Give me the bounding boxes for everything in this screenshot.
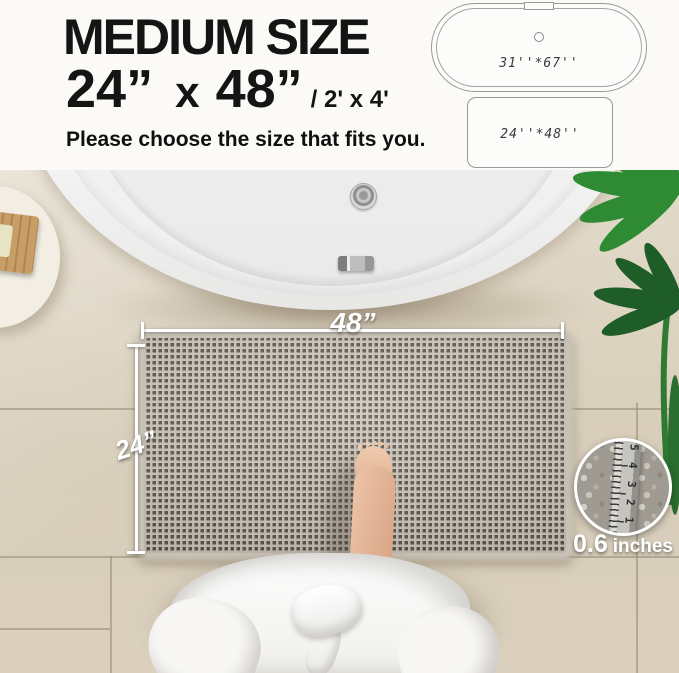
width-dimension-label: 48” <box>303 307 403 339</box>
ruler-number: 3 <box>625 480 637 495</box>
ruler: 5 4 3 2 1 <box>607 438 642 536</box>
product-infographic: MEDIUM SIZE 24” x 48” / 2' x 4' Please c… <box>0 0 679 673</box>
size-label: 24” x 48” / 2' x 4' <box>66 62 389 116</box>
bathtub-diagram-faucet-notch <box>524 2 554 10</box>
page-title: MEDIUM SIZE <box>63 12 369 62</box>
header-section: MEDIUM SIZE 24” x 48” / 2' x 4' Please c… <box>0 0 679 170</box>
size-x: x <box>175 71 199 115</box>
bathtub-drain <box>350 183 377 210</box>
tile-grout-line <box>110 556 112 673</box>
tile-grout-line <box>0 628 110 630</box>
length-dimension-cap-bottom <box>127 551 145 554</box>
bathtub-faucet <box>338 256 374 271</box>
bathtub-diagram-label: 31''*67'' <box>432 56 646 71</box>
size-inches-b: 48” <box>216 62 303 116</box>
pile-detail-zoom-circle: 5 4 3 2 1 <box>574 438 672 536</box>
size-feet-alt: / 2' x 4' <box>311 86 389 114</box>
mat-size-diagram: 24''*48'' <box>467 97 613 168</box>
mat-diagram-label: 24''*48'' <box>468 127 612 142</box>
ruler-number: 4 <box>627 462 639 477</box>
bathtub-diagram-drain-icon <box>534 32 544 42</box>
thickness-unit: inches <box>613 536 673 557</box>
bathtub-size-diagram: 31''*67'' <box>431 3 647 92</box>
bathroom-photo: 48” 24” 5 4 3 2 1 0.6inches <box>0 170 679 673</box>
bathtub-diagram-inner-outline <box>436 8 642 87</box>
size-inches-a: 24” <box>66 62 153 116</box>
ruler-number: 2 <box>624 498 636 513</box>
ruler-number: 5 <box>628 444 640 459</box>
thickness-value: 0.6 <box>573 530 608 558</box>
tagline: Please choose the size that fits you. <box>66 128 425 152</box>
length-dimension-cap-top <box>127 344 145 347</box>
soap-bar <box>0 224 13 258</box>
thickness-label: 0.6inches <box>573 530 673 559</box>
width-dimension-cap-right <box>561 322 564 339</box>
plant-leaf-top <box>571 170 679 259</box>
width-dimension-cap-left <box>141 322 144 339</box>
